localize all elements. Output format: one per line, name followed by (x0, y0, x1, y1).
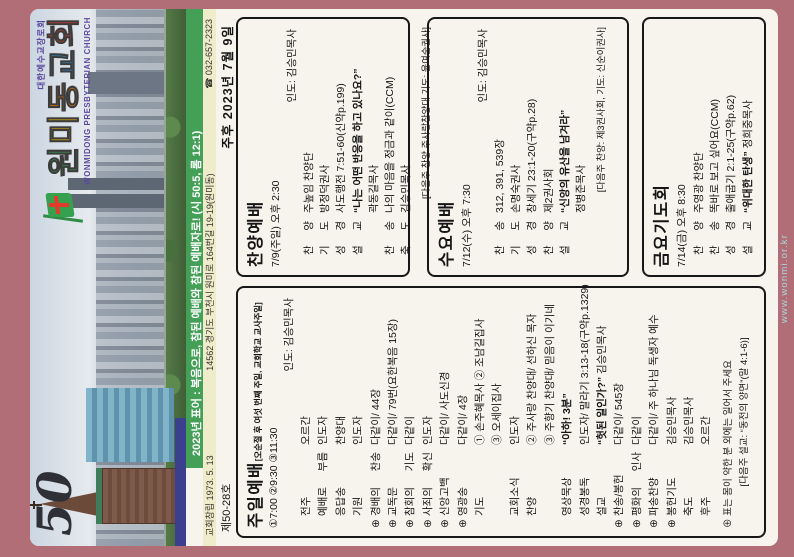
order-row: ⊕참회의 기도다같이 (402, 296, 419, 528)
founded-date: 교회창립 1973. 5. 13 (203, 455, 216, 536)
order-row: 찬양② 주사랑 찬양대/ 선하신 목자 (524, 296, 541, 528)
order-row: 찬 양주영광 찬양단 (691, 27, 707, 267)
order-row: 후주오르간 (698, 296, 715, 528)
order-row: 성경봉독인도자/ 말라기 3:13-18(구약p.1329) (577, 296, 594, 528)
order-row: ⊕신앙고백다같이/ 사도신경 (437, 296, 454, 528)
church-name-char: 교 (47, 49, 82, 79)
service-time: 7/9(주일) 오후 2:30 (268, 27, 283, 267)
service-time: 7/12(수) 오후 7:30 (459, 27, 474, 267)
order-row: 설교“헛된 일인가?” 김승민목사 (594, 296, 611, 528)
church-logo: 대한예수교장로회 원미동교회 WONMIDONG PRESBYTERIAN CH… (35, 17, 92, 222)
order-row: 기도① 손주혜목사 ② 조남길집사 (472, 296, 489, 528)
order-row: 찬 송나의 마음을 정금과 같이(CCM) (382, 27, 398, 267)
skyscraper (88, 72, 164, 94)
order-row: 성 경출애굽기 2:1-25(구약p.62) (723, 27, 739, 267)
service-leader: 인도: 김승민목사 (475, 29, 490, 267)
order-row: ⊕찬송/봉헌다같이/ 545장 (611, 296, 628, 528)
order-row: 찬 송312, 391, 539장 (492, 27, 508, 267)
church-name-korean: 원미동교회 (47, 17, 82, 177)
church-info-bar: 교회창립 1973. 5. 13 14562 경기도 부천시 원미로 164번길… (203, 9, 216, 546)
issue-number: 제50-28호 (218, 484, 234, 532)
order-row: ⊕경배의 찬송다같이/ 44장 (368, 296, 385, 528)
church-name-char: 원 (47, 147, 82, 177)
order-row: 성 경사도행전 7:51-60(신약p.199) (333, 27, 349, 267)
service-times: ①7:00 ②9:30 ③11:30 (268, 296, 280, 528)
header-city-photo: 50 대한예수교장로회 원미동교회 WONMIDONG PRESBYTERIAN… (30, 9, 186, 546)
order-row: ⊕파송찬양다같이/ 주 하나님 독생자 예수 (646, 296, 663, 528)
order-rows: 찬 양주영광 찬양단찬 송똑바로 보고 싶어요(CCM)성 경출애굽기 2:1-… (691, 27, 756, 267)
church-phone: ☎ 032-657-2323 (204, 19, 215, 89)
service-leader: 인도: 김승민목사 (281, 298, 296, 528)
order-row: 예배로 부름인도자 (315, 296, 332, 528)
order-row: ③ 오세이집사 (489, 296, 506, 528)
glass-building (86, 388, 174, 462)
bulletin-page: 50 대한예수교장로회 원미동교회 WONMIDONG PRESBYTERIAN… (30, 9, 778, 546)
section-title: 금요기도회 (648, 27, 672, 267)
order-row: 정병준목사 (573, 27, 589, 267)
wednesday-worship-box: 수요예배 7/12(수) 오후 7:30 인도: 김승민목사 찬 송312, 3… (427, 17, 629, 277)
order-rows: 찬 양주높임 찬양단기 도방정덕권사성 경사도행전 7:51-60(신약p.19… (301, 27, 414, 267)
order-row: ⊕평화의 인사다같이 (629, 296, 646, 528)
order-row: 기원인도자 (350, 296, 367, 528)
order-row: ③ 주향기 찬양대/ 믿음이 이기네 (542, 296, 559, 528)
order-rows: 전주오르간예배로 부름인도자응답송찬양대기원인도자⊕경배의 찬송다같이/ 44장… (298, 296, 716, 528)
motto-text: 2023년 표어 : 복음으로, 참된 예배와 참된 예배자로! (시 50:5… (188, 131, 204, 456)
order-row: 곽동길목사 (366, 27, 382, 267)
order-row: ⊕사죄의 확신인도자 (420, 296, 437, 528)
church-name-english: WONMIDONG PRESBYTERIAN CHURCH (83, 17, 92, 185)
next-week-sermon: [다음주 설교: “동전의 양면”(말 4:1-6)] (736, 296, 750, 528)
section-title: 주일예배[오순절 후 여섯 번째 주일, 교회학교 교사주일] (242, 296, 266, 528)
order-row: 찬 송똑바로 보고 싶어요(CCM) (707, 27, 723, 267)
order-row: 설 교“위대한 탄생” 정희중목사 (740, 27, 756, 267)
order-rows: 찬 송312, 391, 539장기 도손명숙권사성 경창세기 23:1-20(… (492, 27, 589, 267)
order-row: 응답송찬양대 (333, 296, 350, 528)
website-url-watermark: www.wonmi.or.kr (779, 0, 790, 557)
order-row: 찬 양제2권사회 (541, 27, 557, 267)
right-column: 찬양예배 7/9(주일) 오후 2:30 인도: 김승민목사 찬 양주높임 찬양… (236, 17, 766, 277)
order-row: 설 교“나는 어떤 반응을 하고 있나요?” (350, 27, 366, 267)
anniversary-50-mark: 50 (32, 471, 79, 536)
motto-banner: 2023년 표어 : 복음으로, 참된 예배와 참된 예배자로! (시 50:5… (186, 9, 203, 546)
friday-prayer-box: 금요기도회 7/14(금) 오후 8:30 찬 양주영광 찬양단찬 송똑바로 보… (642, 17, 766, 277)
order-row: 축도김승민목사 (681, 296, 698, 528)
church-address: 14562 경기도 부천시 원미로 164번길 19-19(원미동) (203, 173, 216, 370)
cross-flag-icon (43, 192, 83, 222)
church-name-block: 대한예수교장로회 원미동교회 WONMIDONG PRESBYTERIAN CH… (35, 17, 92, 185)
order-row: ⊕교독문다같이/ 79번(요한복음 15장) (385, 296, 402, 528)
church-building (102, 468, 180, 524)
issue-row: 제50-28호 주후 2023년 7월 9일 (217, 9, 235, 546)
sunday-worship-box: 주일예배[오순절 후 여섯 번째 주일, 교회학교 교사주일] ①7:00 ②9… (236, 286, 766, 538)
church-name-char: 회 (47, 17, 82, 47)
section-title: 수요예배 (433, 27, 457, 267)
left-column: 주일예배[오순절 후 여섯 번째 주일, 교회학교 교사주일] ①7:00 ②9… (236, 286, 766, 538)
order-row: 설 교“신앙의 유산을 남겨라” (557, 27, 573, 267)
next-week-note: [다음주 찬양: 제3권사회, 기도: 신순이권사] (593, 27, 607, 267)
praise-worship-box: 찬양예배 7/9(주일) 오후 2:30 인도: 김승민목사 찬 양주높임 찬양… (236, 17, 410, 277)
order-row: 기 도손명숙권사 (508, 27, 524, 267)
rotated-bulletin-scan: 50 대한예수교장로회 원미동교회 WONMIDONG PRESBYTERIAN… (0, 0, 794, 557)
order-row: ⊕영광송다같이/ 4장 (455, 296, 472, 528)
church-name-char: 미 (47, 114, 82, 144)
order-row: 찬 양주높임 찬양단 (301, 27, 317, 267)
service-leader: 인도: 김승민목사 (284, 29, 299, 267)
standing-footnote: ⊕ 표는 몸이 약한 분 외에는 일어서 주세요 (720, 296, 734, 528)
bulletin-date: 주후 2023년 7월 9일 (217, 25, 236, 149)
photo-indigo-band (175, 418, 186, 546)
worship-orders: 주일예배[오순절 후 여섯 번째 주일, 교회학교 교사주일] ①7:00 ②9… (236, 17, 766, 538)
section-note: [오순절 후 여섯 번째 주일, 교회학교 교사주일] (253, 302, 263, 461)
order-row: 교회소식인도자 (507, 296, 524, 528)
service-time: 7/14(금) 오후 8:30 (674, 27, 689, 267)
order-row: 기 도방정덕권사 (317, 27, 333, 267)
order-row: 축 도김승민목사 (398, 27, 414, 267)
section-title: 찬양예배 (242, 27, 266, 267)
church-name-char: 동 (47, 82, 82, 112)
order-row: 전주오르간 (298, 296, 315, 528)
order-row: 영상묵상“아하! 3분” (559, 296, 576, 528)
order-row: ⊕봉헌기도김승민목사 (664, 296, 681, 528)
order-row: 성 경창세기 23:1-20(구약p.28) (524, 27, 540, 267)
